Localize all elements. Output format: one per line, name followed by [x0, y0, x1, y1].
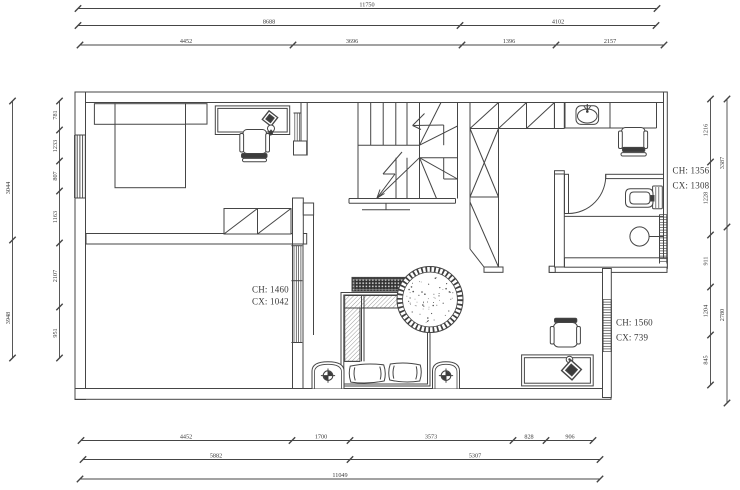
svg-text:5307: 5307 [469, 453, 481, 460]
svg-text:5882: 5882 [210, 453, 222, 460]
svg-text:906: 906 [565, 434, 574, 441]
svg-text:911: 911 [703, 256, 710, 265]
svg-text:781: 781 [52, 110, 59, 119]
svg-text:1700: 1700 [315, 434, 327, 441]
svg-text:CX: 1308: CX: 1308 [673, 181, 710, 191]
svg-text:828: 828 [524, 434, 533, 441]
svg-text:2107: 2107 [52, 270, 59, 282]
svg-text:1228: 1228 [703, 192, 710, 204]
svg-text:4452: 4452 [180, 434, 192, 441]
svg-text:3948: 3948 [5, 312, 12, 324]
svg-text:CH: 1356: CH: 1356 [673, 166, 710, 176]
svg-text:CH: 1560: CH: 1560 [616, 318, 653, 328]
svg-text:1216: 1216 [703, 124, 710, 136]
svg-text:3044: 3044 [5, 182, 12, 194]
svg-text:2780: 2780 [719, 309, 726, 321]
svg-text:2157: 2157 [604, 38, 616, 45]
svg-text:1163: 1163 [52, 211, 59, 223]
svg-text:807: 807 [52, 171, 59, 180]
svg-text:CX: 739: CX: 739 [616, 333, 648, 343]
svg-text:4102: 4102 [552, 19, 564, 26]
svg-text:11750: 11750 [359, 2, 374, 9]
svg-text:11049: 11049 [332, 472, 347, 479]
svg-text:8688: 8688 [263, 19, 275, 26]
svg-text:1396: 1396 [503, 38, 515, 45]
svg-text:CX: 1042: CX: 1042 [252, 297, 289, 307]
svg-text:4452: 4452 [180, 38, 192, 45]
svg-text:3387: 3387 [719, 157, 726, 169]
svg-text:1233: 1233 [52, 140, 59, 152]
svg-text:3696: 3696 [346, 38, 358, 45]
svg-text:CH: 1460: CH: 1460 [252, 285, 289, 295]
svg-text:951: 951 [52, 328, 59, 337]
svg-text:845: 845 [703, 355, 710, 364]
svg-text:3573: 3573 [425, 434, 437, 441]
svg-text:1204: 1204 [703, 305, 710, 317]
